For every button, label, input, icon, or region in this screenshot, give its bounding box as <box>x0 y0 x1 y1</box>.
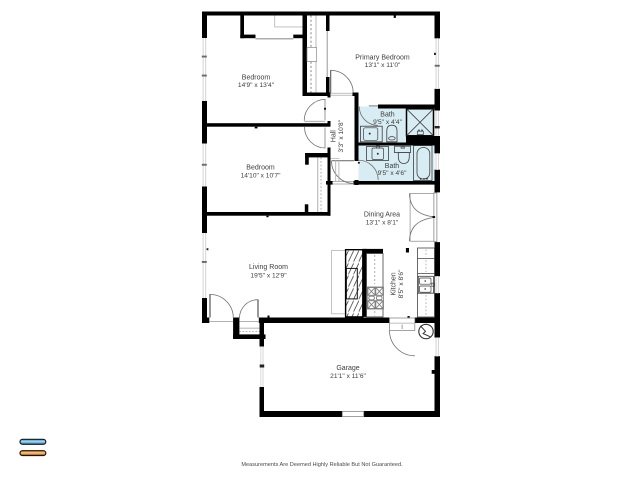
svg-text:13'1" x 11'0": 13'1" x 11'0" <box>365 62 401 69</box>
svg-text:19'5" x 12'9": 19'5" x 12'9" <box>250 272 287 279</box>
svg-text:Measurements Are Deemed Highly: Measurements Are Deemed Highly Reliable … <box>241 462 403 468</box>
svg-text:3'3" x 10'8": 3'3" x 10'8" <box>338 119 345 152</box>
svg-text:9'5" x 4'4": 9'5" x 4'4" <box>373 119 402 126</box>
svg-text:Kitchen: Kitchen <box>391 272 398 295</box>
svg-text:Bedroom: Bedroom <box>246 165 275 172</box>
svg-text:Dining Area: Dining Area <box>364 212 400 219</box>
svg-text:Primary Bedroom: Primary Bedroom <box>355 55 410 62</box>
svg-text:14'9" x 13'4": 14'9" x 13'4" <box>238 82 275 89</box>
svg-text:Bedroom: Bedroom <box>242 75 271 82</box>
svg-text:21'1" x 11'6": 21'1" x 11'6" <box>330 373 366 380</box>
svg-text:Living Room: Living Room <box>249 264 288 271</box>
svg-text:14'10" x 10'7": 14'10" x 10'7" <box>241 172 281 179</box>
svg-text:Bath: Bath <box>380 111 395 118</box>
svg-text:8'5" x 8'6": 8'5" x 8'6" <box>398 269 405 298</box>
svg-text:Garage: Garage <box>336 365 359 372</box>
svg-text:Hall: Hall <box>331 130 338 143</box>
svg-text:9'5" x 4'6": 9'5" x 4'6" <box>378 170 407 177</box>
svg-text:13'1" x 8'1": 13'1" x 8'1" <box>366 220 399 227</box>
